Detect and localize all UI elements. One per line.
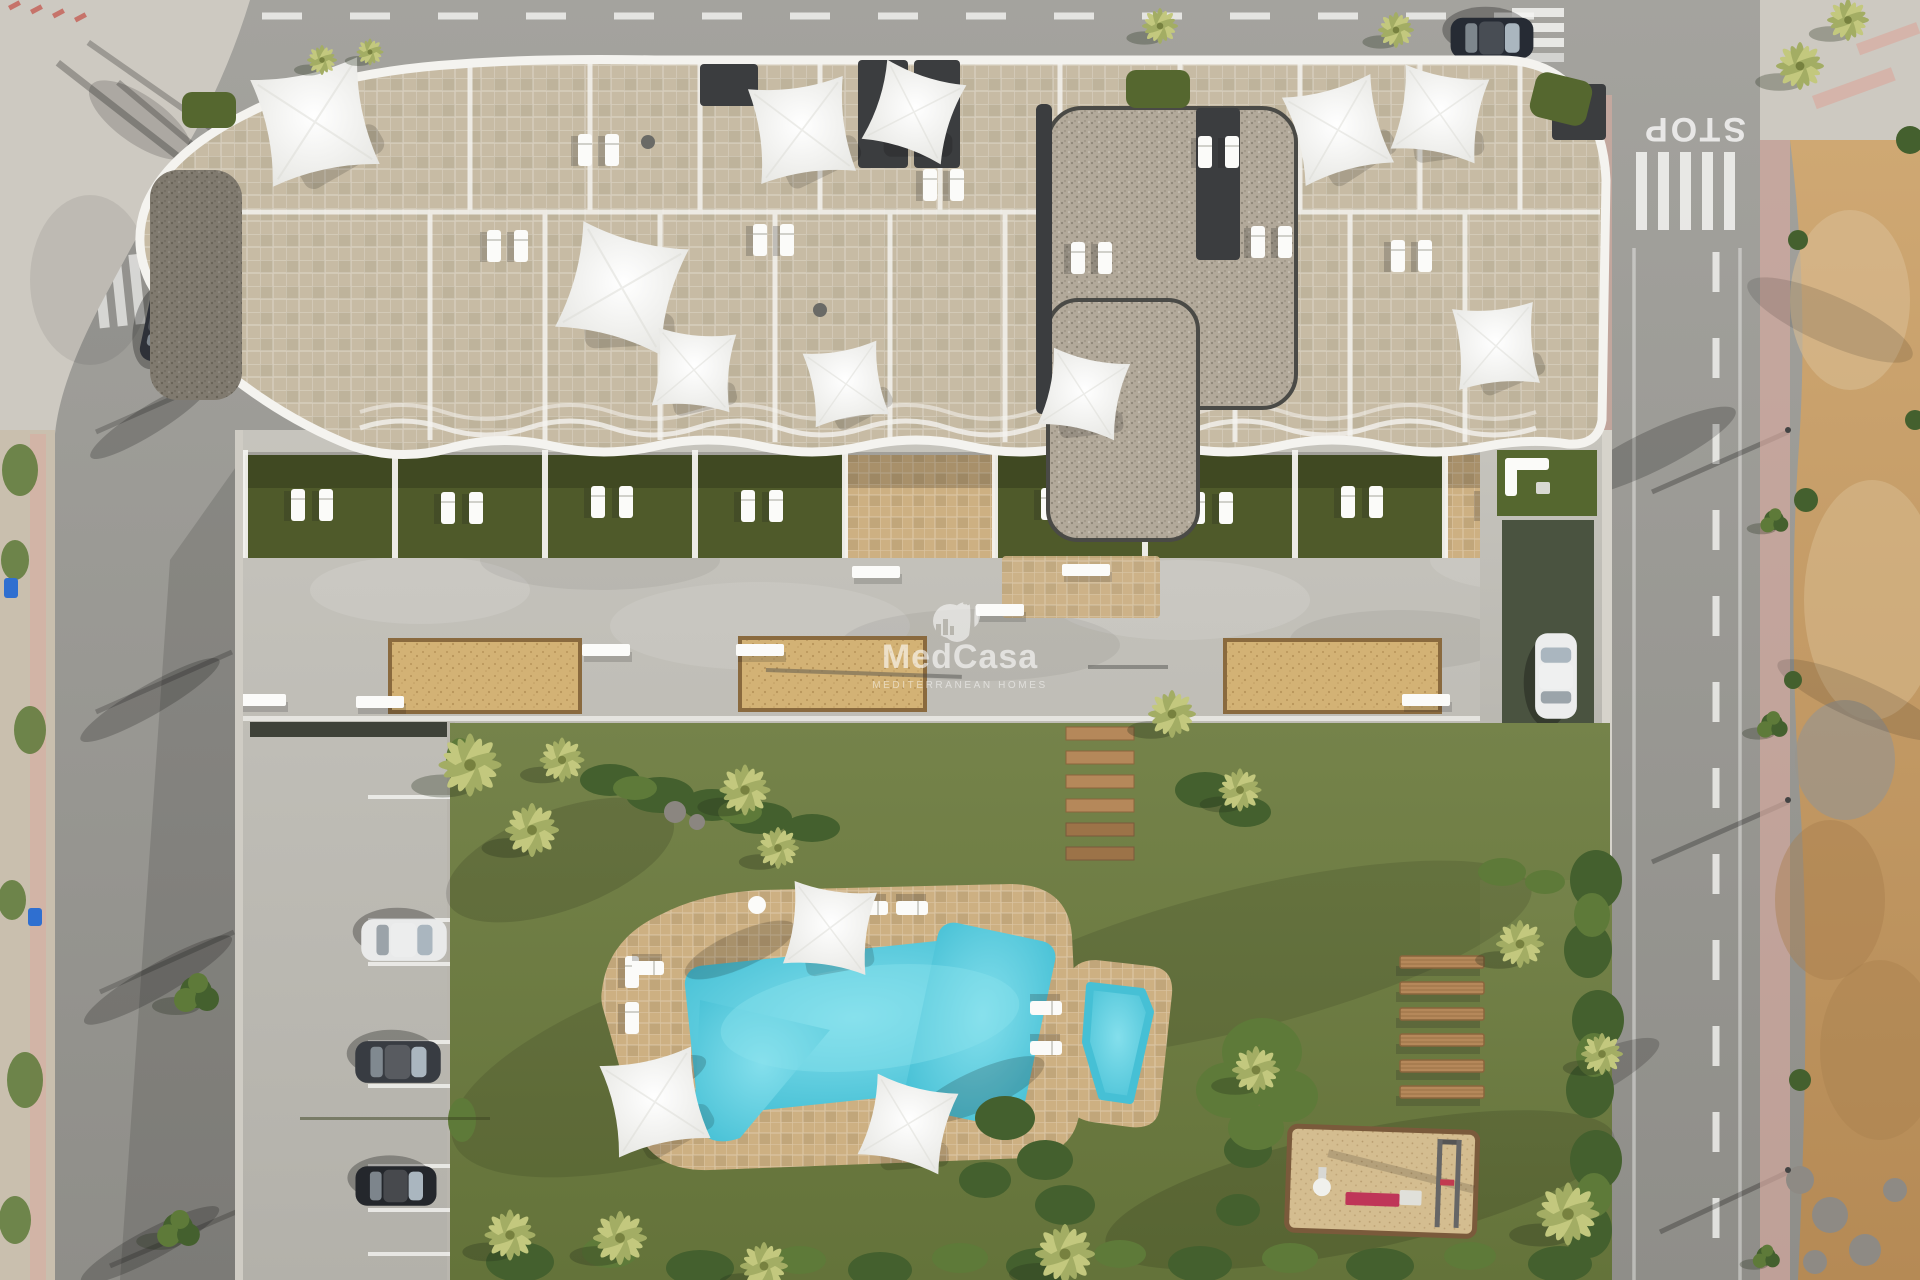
coffee-table (1536, 482, 1550, 494)
watermark-tagline: MEDITERRANEAN HOMES (872, 680, 1048, 691)
garage-ramp (250, 722, 450, 737)
promenade-bench (736, 644, 786, 662)
ground-floor-terraces (242, 450, 1560, 558)
garden-edge-curb (243, 716, 1603, 721)
building-shadow (245, 452, 1557, 488)
left-pink-sidewalk-band (30, 434, 46, 1280)
promenade-bench (356, 696, 406, 714)
irrigation-line (300, 1117, 490, 1120)
sand-planter (390, 640, 580, 712)
pool-lounger (1030, 994, 1062, 1015)
outdoor-sofa (1505, 458, 1517, 496)
promenade-bench (852, 566, 902, 584)
rock (689, 814, 705, 830)
aerial-render-scene: STOP (0, 0, 1920, 1280)
scene-canvas: STOP (0, 0, 1920, 1280)
pool-lounger (896, 894, 928, 915)
playground-bench (1345, 1192, 1399, 1207)
communal-garden (300, 690, 1627, 1280)
splash-pool (1067, 960, 1172, 1127)
roof-garden-patch (182, 92, 236, 128)
stop-road-marking: STOP (1642, 110, 1746, 148)
handrail (1088, 665, 1168, 669)
pool-lounger (632, 954, 664, 975)
play-table (1399, 1190, 1422, 1206)
rock (664, 801, 686, 823)
pool-table (748, 896, 766, 914)
watermark-brand: MedCasa (882, 638, 1038, 676)
residential-complex-grounds (235, 430, 1627, 1280)
roof-garden-patch (1126, 70, 1190, 108)
pool-lounger (618, 1002, 639, 1034)
blue-bin-icon (28, 908, 42, 926)
pool-lounger (1030, 1034, 1062, 1055)
west-boundary-wall (235, 430, 243, 1280)
promenade-bench (582, 644, 632, 662)
promenade-bench (238, 694, 288, 712)
playground (1286, 1126, 1478, 1236)
main-pool (599, 881, 1080, 1187)
swing-seat (1440, 1179, 1454, 1185)
promenade-bench (1402, 694, 1452, 712)
palm-circle-icon (922, 590, 1008, 644)
pink-sidewalk-east (1760, 95, 1790, 1280)
blue-bin-icon (4, 578, 18, 598)
promenade-bench (1062, 564, 1112, 582)
